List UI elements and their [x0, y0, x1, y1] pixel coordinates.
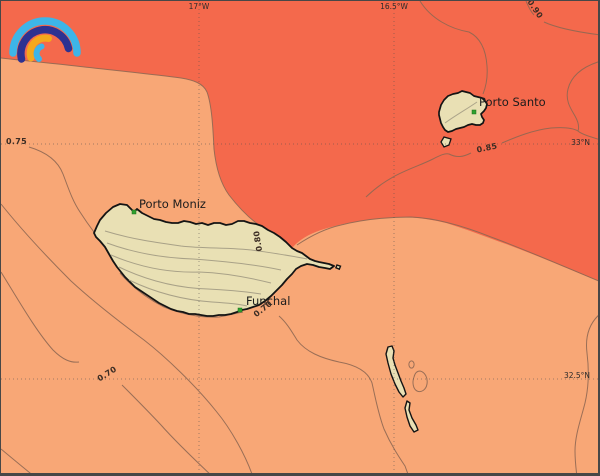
madeira-east-islet [336, 265, 341, 269]
porto-moniz-marker [132, 210, 136, 214]
contour-map-figure: Porto Moniz Funchal Porto Santo 17°W 16.… [0, 0, 600, 476]
porto-santo-islet [441, 137, 451, 147]
porto-santo-marker [472, 110, 476, 114]
funchal-marker [238, 308, 242, 312]
map-canvas [1, 1, 600, 476]
pangeo-rainbow-logo-icon [8, 13, 90, 63]
